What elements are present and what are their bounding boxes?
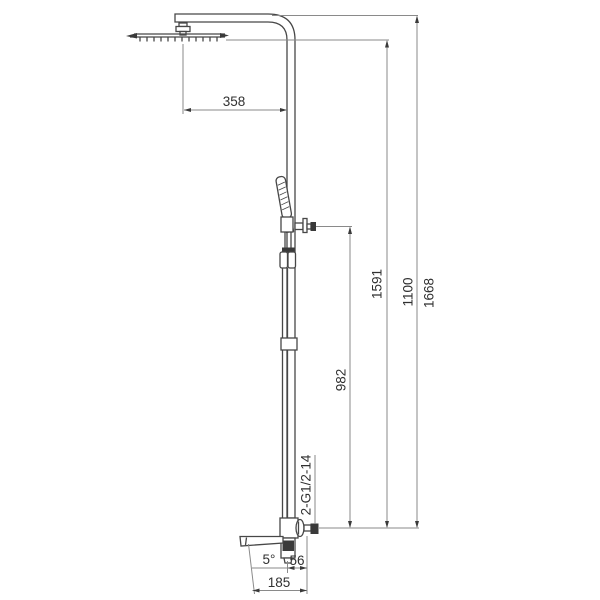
head-ball-joint [176,23,190,35]
dimension-spout-reach: 185 [253,575,308,593]
pipe-coupling [281,338,297,350]
dim-1591-label: 1591 [370,269,385,299]
dim-1668-label: 1668 [422,278,437,308]
shower-column-dimension-drawing: 358 982 1591 1100 1668 2-G1/2-14 5° [0,0,600,600]
rain-shower-head [126,33,229,42]
dimension-head-height: 1591 [370,40,390,528]
dimension-hand-shower-height: 982 [334,227,353,529]
hand-shower-holder [281,217,316,233]
dimension-arm-reach: 358 [183,44,287,114]
dim-185-label: 185 [268,575,291,590]
dimension-total-height: 1100 1668 [401,16,437,529]
dim-358-label: 358 [223,94,246,109]
inlet-thread-label: 2-G1/2-14 [299,454,314,515]
dim-982-label: 982 [334,369,349,392]
nozzle-ticks [140,38,217,42]
technical-drawing: 358 982 1591 1100 1668 2-G1/2-14 5° [0,0,600,600]
dim-56-label: 56 [289,553,304,568]
callout-inlet-thread: 2-G1/2-14 [299,454,316,524]
shower-arm-and-riser-pipe [175,14,295,518]
mixer-body [280,518,298,538]
tub-spout [240,537,283,547]
spout-angle-label: 5° [263,552,276,567]
dim-1100-label: 1100 [401,277,416,306]
